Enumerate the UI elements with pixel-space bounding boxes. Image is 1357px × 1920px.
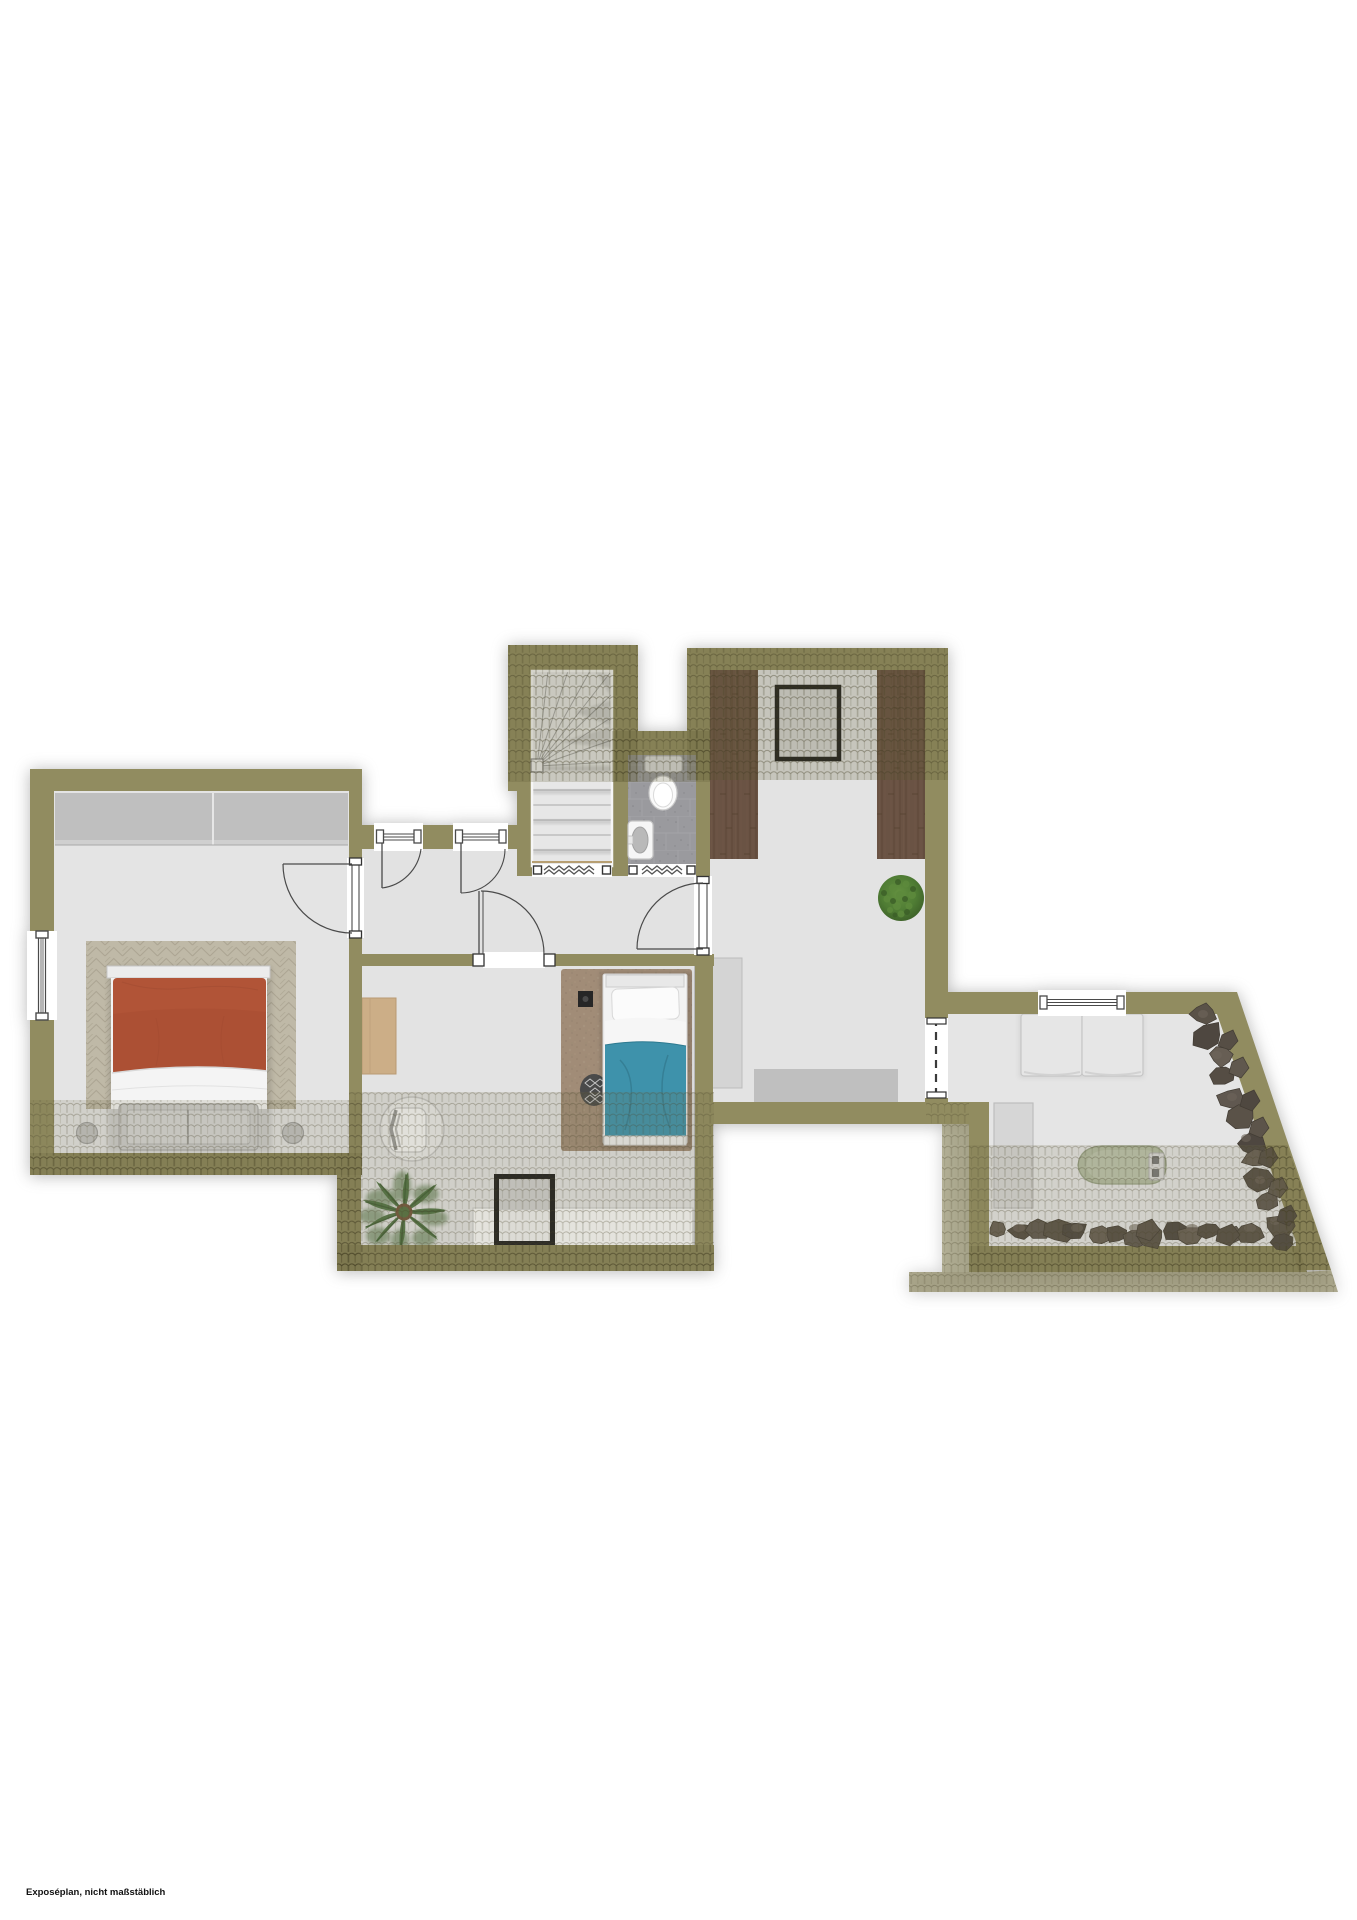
svg-text:Exposéplan, nicht maßstäblich: Exposéplan, nicht maßstäblich: [26, 1887, 166, 1898]
